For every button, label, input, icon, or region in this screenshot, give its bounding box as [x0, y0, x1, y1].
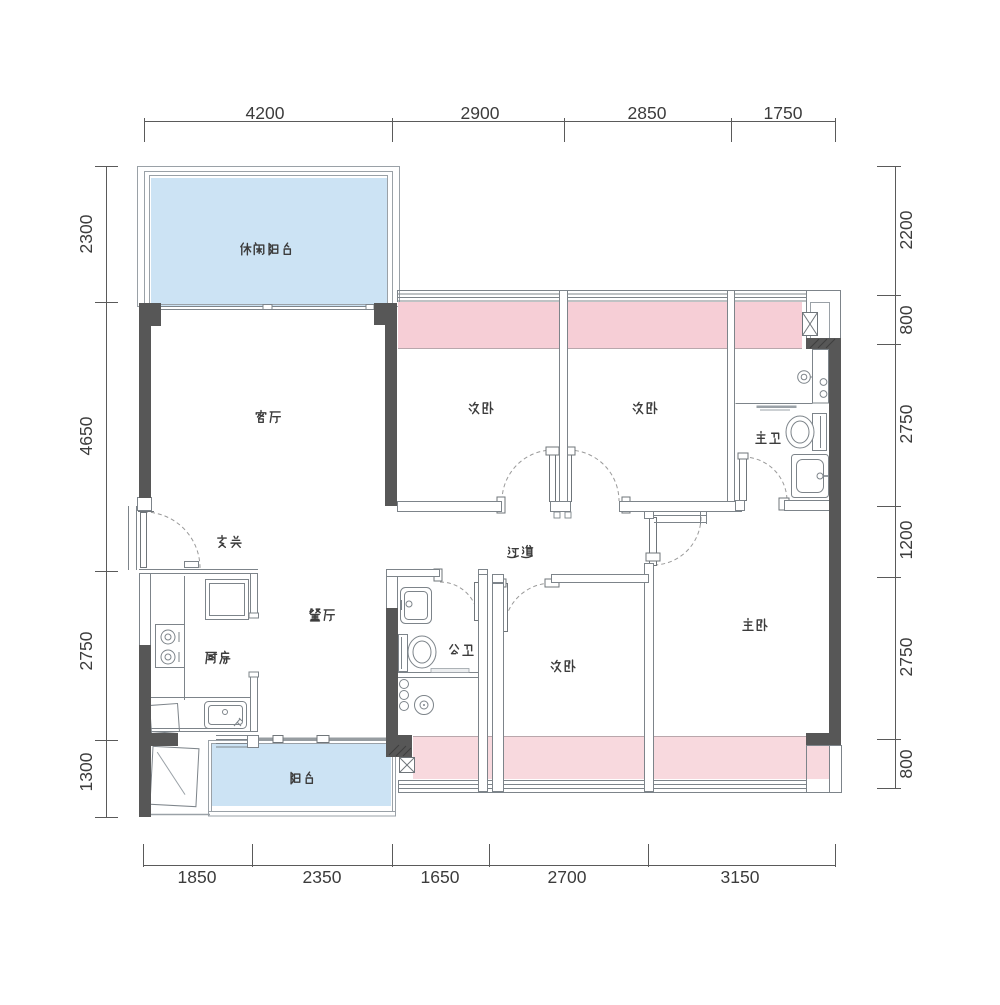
svg-text:3150: 3150 — [721, 867, 760, 887]
svg-text:1850: 1850 — [178, 867, 217, 887]
svg-text:4200: 4200 — [246, 103, 285, 123]
svg-text:2750: 2750 — [896, 637, 916, 676]
svg-text:2850: 2850 — [628, 103, 667, 123]
svg-text:2700: 2700 — [548, 867, 587, 887]
svg-text:2300: 2300 — [76, 214, 96, 253]
svg-text:1650: 1650 — [421, 867, 460, 887]
svg-text:800: 800 — [896, 749, 916, 778]
svg-text:1300: 1300 — [76, 752, 96, 791]
svg-text:1750: 1750 — [764, 103, 803, 123]
svg-text:800: 800 — [896, 305, 916, 334]
svg-text:4650: 4650 — [76, 416, 96, 455]
svg-text:1200: 1200 — [896, 520, 916, 559]
svg-text:2750: 2750 — [896, 404, 916, 443]
svg-text:2350: 2350 — [303, 867, 342, 887]
svg-text:2900: 2900 — [461, 103, 500, 123]
svg-text:2200: 2200 — [896, 210, 916, 249]
svg-text:2750: 2750 — [76, 631, 96, 670]
